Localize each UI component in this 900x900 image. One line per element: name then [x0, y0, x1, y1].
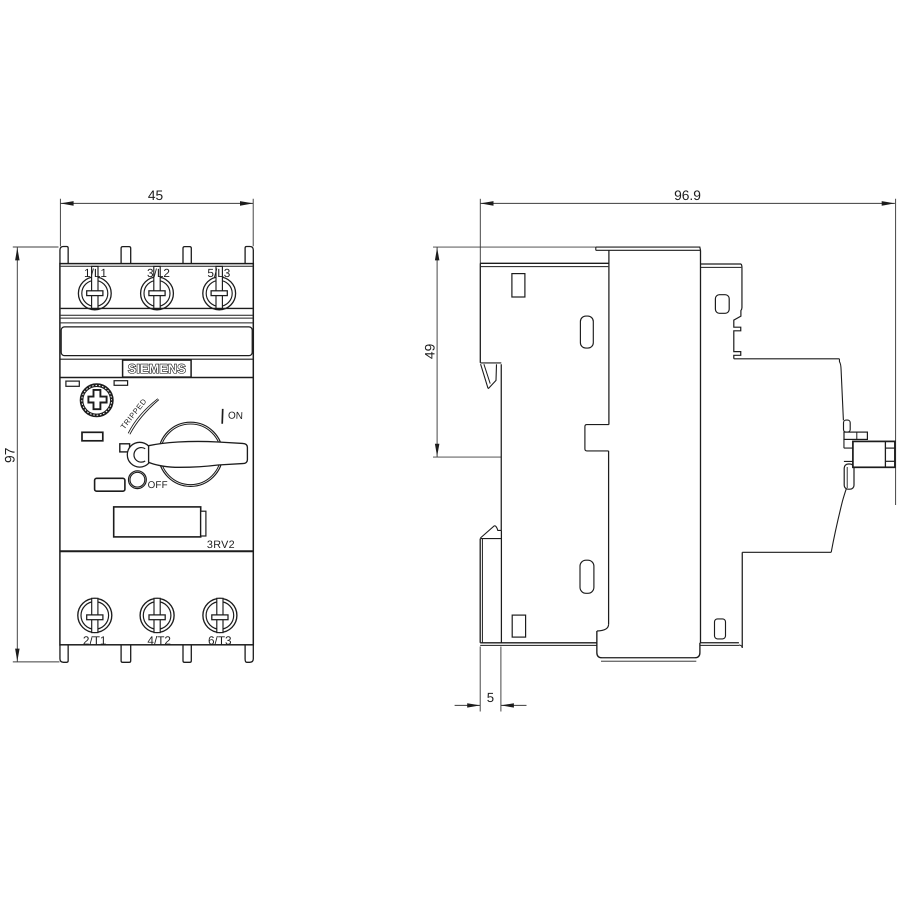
svg-text:5/L3: 5/L3	[207, 266, 230, 280]
svg-text:97: 97	[3, 448, 18, 463]
svg-text:SIEMENS: SIEMENS	[128, 362, 186, 376]
svg-text:45: 45	[148, 188, 164, 203]
svg-text:OFF: OFF	[148, 480, 168, 491]
svg-text:5: 5	[487, 690, 494, 705]
svg-text:2/T1: 2/T1	[83, 633, 107, 647]
svg-text:6/T3: 6/T3	[208, 633, 232, 647]
svg-text:3RV2: 3RV2	[207, 539, 235, 551]
svg-text:3/L2: 3/L2	[147, 266, 170, 280]
svg-text:ON: ON	[228, 410, 243, 422]
svg-text:1/L1: 1/L1	[84, 266, 107, 280]
svg-text:4/T2: 4/T2	[147, 633, 171, 647]
svg-text:49: 49	[423, 343, 438, 359]
svg-text:96.9: 96.9	[674, 188, 701, 203]
